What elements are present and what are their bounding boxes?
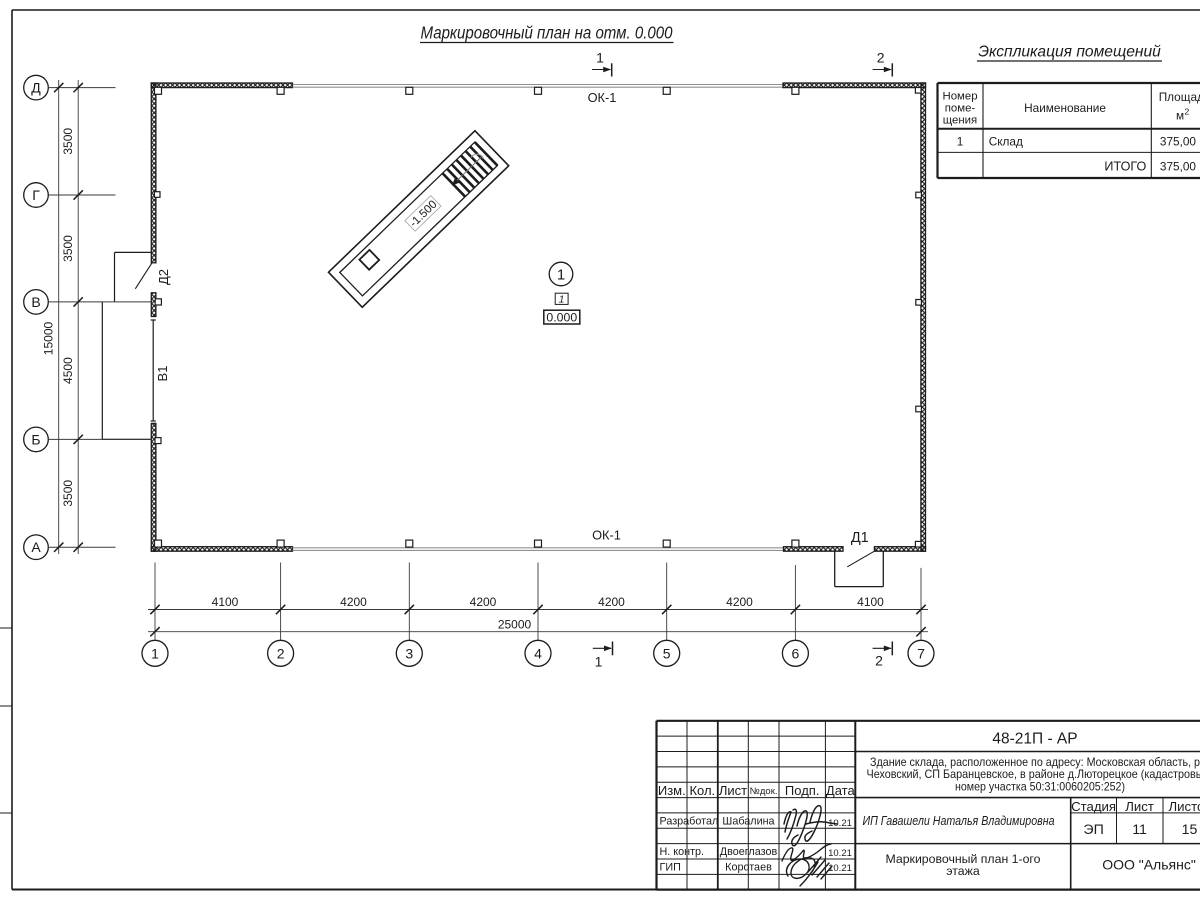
svg-text:Дата: Дата	[826, 783, 856, 798]
svg-text:48-21П - АР: 48-21П - АР	[992, 731, 1077, 748]
svg-text:этажа: этажа	[946, 864, 980, 878]
svg-text:4500: 4500	[61, 357, 75, 384]
svg-text:4100: 4100	[857, 595, 884, 609]
svg-text:4200: 4200	[470, 595, 497, 609]
svg-text:№док.: №док.	[750, 786, 778, 797]
svg-text:2: 2	[877, 50, 885, 66]
svg-text:Маркировочный план на отм. 0.0: Маркировочный план на отм. 0.000	[421, 23, 673, 43]
svg-text:Д: Д	[31, 80, 41, 96]
svg-text:1: 1	[559, 293, 565, 305]
svg-text:3: 3	[405, 646, 413, 662]
svg-text:Изм.: Изм.	[658, 783, 686, 798]
svg-text:Д1: Д1	[851, 530, 869, 546]
svg-text:ГИП: ГИП	[660, 861, 681, 873]
svg-text:Листов: Листов	[1169, 799, 1200, 814]
svg-text:Г: Г	[32, 187, 40, 203]
svg-text:ИТОГО: ИТОГО	[1104, 160, 1146, 174]
svg-text:Площадь,: Площадь,	[1159, 90, 1200, 104]
svg-text:11: 11	[1132, 822, 1147, 838]
svg-text:Д2: Д2	[156, 269, 171, 285]
svg-text:Подп.: Подп.	[785, 783, 820, 798]
svg-text:Склад: Склад	[989, 135, 1023, 149]
svg-text:0.000: 0.000	[546, 310, 577, 324]
svg-text:щения: щения	[943, 115, 977, 127]
svg-text:1: 1	[151, 646, 159, 662]
svg-text:4200: 4200	[726, 595, 753, 609]
svg-text:4200: 4200	[340, 595, 367, 609]
svg-text:Н. контр.: Н. контр.	[660, 846, 705, 858]
svg-text:Двоеглазов: Двоеглазов	[720, 846, 778, 858]
svg-text:2: 2	[875, 653, 883, 669]
svg-text:10.21: 10.21	[828, 863, 852, 874]
svg-text:Разработал: Разработал	[660, 816, 719, 828]
svg-text:номер участка 50:31:0060205:25: номер участка 50:31:0060205:252)	[955, 779, 1125, 793]
svg-text:Лист: Лист	[1125, 799, 1154, 814]
svg-text:ИП Гавашели Наталья Владимиров: ИП Гавашели Наталья Владимировна	[863, 814, 1055, 828]
svg-text:1: 1	[595, 653, 603, 669]
svg-text:6: 6	[792, 646, 800, 662]
svg-text:4100: 4100	[212, 595, 239, 609]
svg-text:10.21: 10.21	[828, 848, 852, 859]
svg-text:В1: В1	[155, 366, 170, 382]
svg-text:2: 2	[277, 646, 285, 662]
svg-text:15: 15	[1182, 822, 1198, 838]
svg-text:А: А	[31, 539, 41, 555]
svg-text:поме-: поме-	[945, 103, 976, 115]
svg-text:Коротаев: Коротаев	[725, 861, 772, 873]
svg-text:ЭП: ЭП	[1083, 822, 1103, 838]
svg-text:1: 1	[957, 135, 964, 149]
svg-text:Лист: Лист	[719, 783, 747, 798]
svg-text:1: 1	[557, 266, 565, 283]
svg-text:7: 7	[917, 646, 925, 662]
svg-text:4200: 4200	[598, 595, 625, 609]
svg-text:3500: 3500	[61, 235, 75, 262]
svg-text:ОК-1: ОК-1	[592, 527, 621, 542]
svg-text:15000: 15000	[41, 321, 55, 355]
svg-text:Наименование: Наименование	[1024, 101, 1106, 115]
svg-text:В: В	[31, 294, 40, 310]
svg-text:Кол.: Кол.	[689, 783, 715, 798]
svg-text:25000: 25000	[498, 617, 532, 631]
svg-text:2: 2	[1185, 107, 1190, 117]
svg-text:375,00: 375,00	[1160, 135, 1197, 149]
svg-text:1: 1	[596, 50, 604, 66]
svg-text:ОК-1: ОК-1	[588, 90, 617, 105]
svg-text:5: 5	[663, 646, 671, 662]
svg-text:Номер: Номер	[942, 91, 977, 103]
svg-text:Экспликация помещений: Экспликация помещений	[978, 44, 1161, 61]
svg-text:Шабалина: Шабалина	[722, 816, 774, 828]
svg-text:Б: Б	[31, 431, 40, 447]
svg-text:ООО "Альянс": ООО "Альянс"	[1102, 856, 1196, 872]
svg-text:Стадия: Стадия	[1071, 799, 1116, 814]
svg-text:3500: 3500	[61, 480, 75, 507]
svg-text:3500: 3500	[61, 128, 75, 155]
svg-text:м: м	[1176, 109, 1184, 123]
svg-text:4: 4	[534, 646, 542, 662]
svg-text:375,00: 375,00	[1160, 160, 1197, 174]
